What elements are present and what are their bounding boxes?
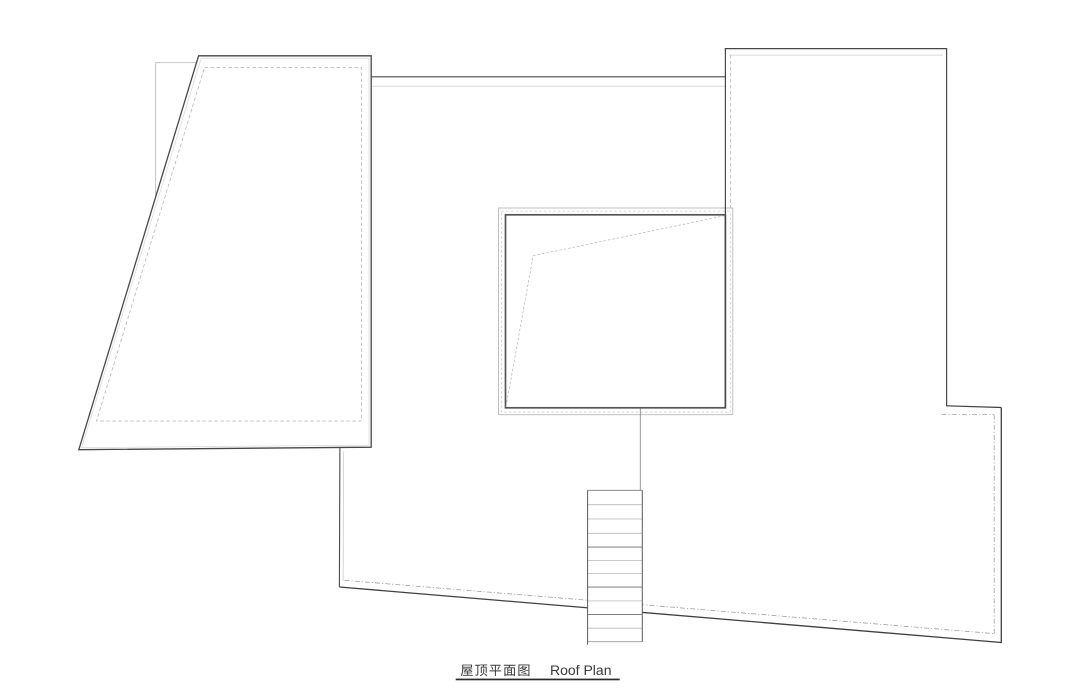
svg-text:Roof Plan: Roof Plan xyxy=(550,662,611,678)
